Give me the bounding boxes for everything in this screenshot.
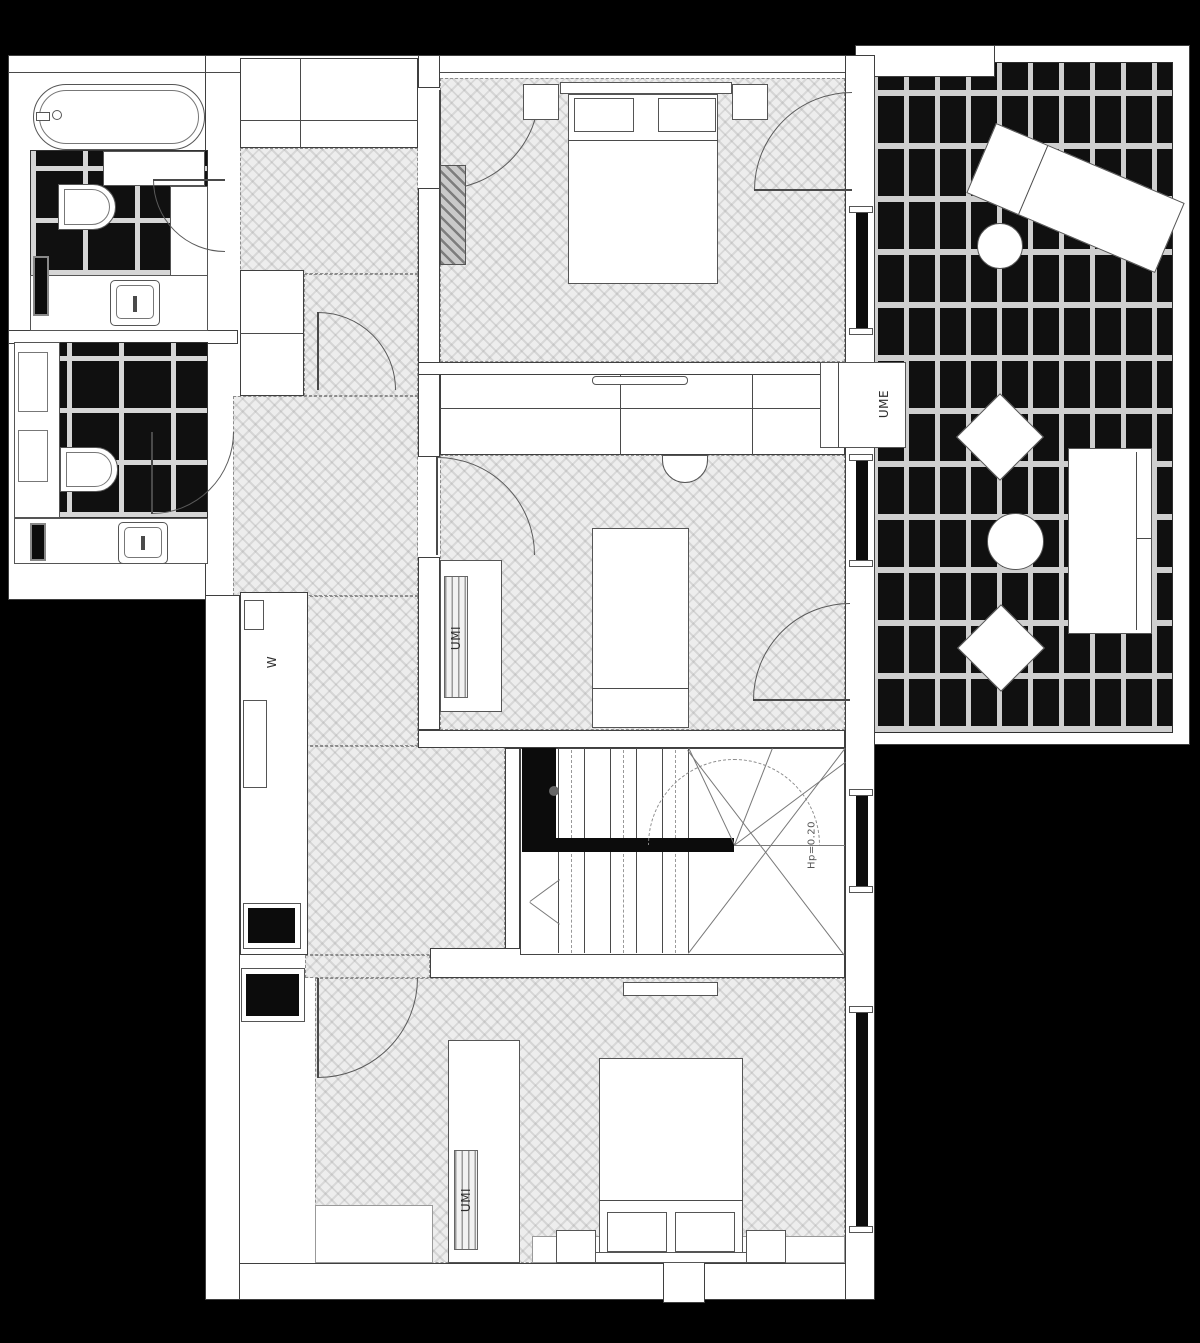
duvet-line xyxy=(568,140,718,141)
nightstand xyxy=(523,84,559,120)
window-frame xyxy=(849,206,873,213)
stair-tread xyxy=(688,852,689,953)
bathtub-faucet-icon xyxy=(36,112,50,121)
window-frame xyxy=(849,1006,873,1013)
terrace-storage-line xyxy=(838,362,839,448)
door-leaf-bathroom1 xyxy=(153,179,225,181)
stair-tread xyxy=(558,852,559,953)
window-glazing-stair xyxy=(856,795,868,888)
stair-wall-vertical xyxy=(522,748,556,852)
bathtub-inner-line xyxy=(39,90,199,144)
pillow xyxy=(658,98,716,132)
window-frame xyxy=(849,328,873,335)
desk-divider-2 xyxy=(752,374,753,455)
washbasin-tap xyxy=(133,296,137,312)
bedroom1-wardrobe-hatch xyxy=(440,165,466,265)
window-frame xyxy=(849,560,873,567)
single-bed-icon xyxy=(592,528,689,728)
radiator-icon xyxy=(30,523,46,561)
bedroom1-headboard xyxy=(560,82,732,94)
window-frame xyxy=(849,789,873,796)
bathroom2-strip-shelf xyxy=(18,352,48,412)
corridor-door-patch xyxy=(305,955,430,978)
radiator-icon xyxy=(33,256,49,316)
corridor-floor xyxy=(305,596,418,746)
pillow xyxy=(574,98,634,132)
bedroom2-bottom-wall xyxy=(418,730,845,748)
bedroom2-left-wall-a xyxy=(418,374,440,457)
hall-closet-label: W xyxy=(265,656,279,668)
window-frame xyxy=(849,454,873,461)
duvet-line xyxy=(599,1200,743,1201)
hall-top-closet xyxy=(240,58,418,148)
stair-tread xyxy=(636,748,637,838)
bathroom2-strip-shelf2 xyxy=(18,430,48,482)
stair-tread-dashed xyxy=(571,750,572,838)
shelf-icon xyxy=(623,982,718,996)
hall-floor-mid xyxy=(233,396,418,596)
window-frame xyxy=(849,1226,873,1233)
round-table-icon xyxy=(987,513,1044,570)
cabinet-appliance-1 xyxy=(248,908,295,943)
stair-tread xyxy=(584,748,585,838)
door-leaf-bedroom3 xyxy=(317,978,319,1078)
stair-tread xyxy=(636,852,637,953)
terrace-step xyxy=(855,45,995,77)
hall-top-closet-line xyxy=(240,120,418,121)
stair-tread-dashed xyxy=(623,854,624,953)
round-table-icon xyxy=(977,223,1023,269)
stair-tread xyxy=(610,852,611,953)
lounger-backrest-line xyxy=(1018,146,1048,215)
floor-plan: UME UMI xyxy=(0,0,1200,1343)
stair-tread xyxy=(662,852,663,953)
terrace-storage-closet xyxy=(820,362,906,448)
window-glazing-bedroom3 xyxy=(856,1012,868,1228)
cabinet-door-frame-2 xyxy=(243,700,267,788)
washbasin-tap xyxy=(141,536,145,550)
bedroom2-left-wall-b xyxy=(418,557,440,730)
window-frame xyxy=(849,886,873,893)
bottom-exterior-wall xyxy=(205,1263,875,1300)
hall-top-closet-divider xyxy=(300,58,301,148)
stair-tread xyxy=(610,748,611,838)
window-glazing-bedroom1 xyxy=(856,212,868,330)
bedroom3-floor-patch xyxy=(315,1205,433,1263)
door-leaf-bathroom2 xyxy=(151,432,153,514)
bedroom3-wardrobe-label: UMI xyxy=(459,1188,473,1212)
toilet-seat-line xyxy=(64,189,110,225)
corridor-floor-lower xyxy=(305,746,505,955)
hall-floor-upper xyxy=(240,148,418,274)
door-leaf-bedroom1-terrace xyxy=(754,189,852,191)
terrace-storage-label: UME xyxy=(877,390,891,418)
cabinet-appliance-2 xyxy=(246,974,299,1016)
hall-closet-shelf-line xyxy=(240,333,304,334)
stair-left-wall xyxy=(505,748,520,955)
door-leaf-bedroom2 xyxy=(436,457,438,555)
bedroom1-left-wall-a xyxy=(418,55,440,88)
stair-winder-line xyxy=(734,845,845,846)
sofa-seat-divider xyxy=(1136,538,1151,539)
cabinet-door-frame-1 xyxy=(244,600,264,630)
tv-icon xyxy=(592,376,688,385)
desk-divider-1 xyxy=(620,374,621,455)
bedroom2-desk xyxy=(440,374,845,455)
desk-edge-line xyxy=(440,408,845,409)
door-leaf-bedroom2-terrace xyxy=(753,699,850,701)
nightstand xyxy=(746,1230,786,1263)
toilet-seat-line xyxy=(66,452,112,487)
bedroom1-left-wall-b xyxy=(418,188,440,364)
sofa-backrest-line xyxy=(1136,452,1137,630)
stair-newel-post xyxy=(549,786,559,796)
stair-parapet-label: Hp=0.20 xyxy=(807,821,818,869)
bathtub-drain-icon xyxy=(52,110,62,120)
stair-tread xyxy=(584,852,585,953)
outdoor-sofa-icon xyxy=(1068,448,1152,634)
blanket-line xyxy=(592,688,689,689)
bedroom3-headboard xyxy=(595,1252,747,1263)
door-leaf-hall xyxy=(317,312,319,390)
pillow xyxy=(607,1212,667,1252)
stair-tread-dashed xyxy=(675,854,676,953)
bedroom2-wardrobe-label: UMI xyxy=(449,626,463,650)
corridor-left-wall xyxy=(205,595,240,1300)
pillow xyxy=(675,1212,735,1252)
nightstand xyxy=(556,1230,596,1263)
stair-tread-dashed xyxy=(623,750,624,838)
window-glazing-bedroom2 xyxy=(856,460,868,562)
stair-tread-dashed xyxy=(571,854,572,953)
nightstand xyxy=(732,84,768,120)
